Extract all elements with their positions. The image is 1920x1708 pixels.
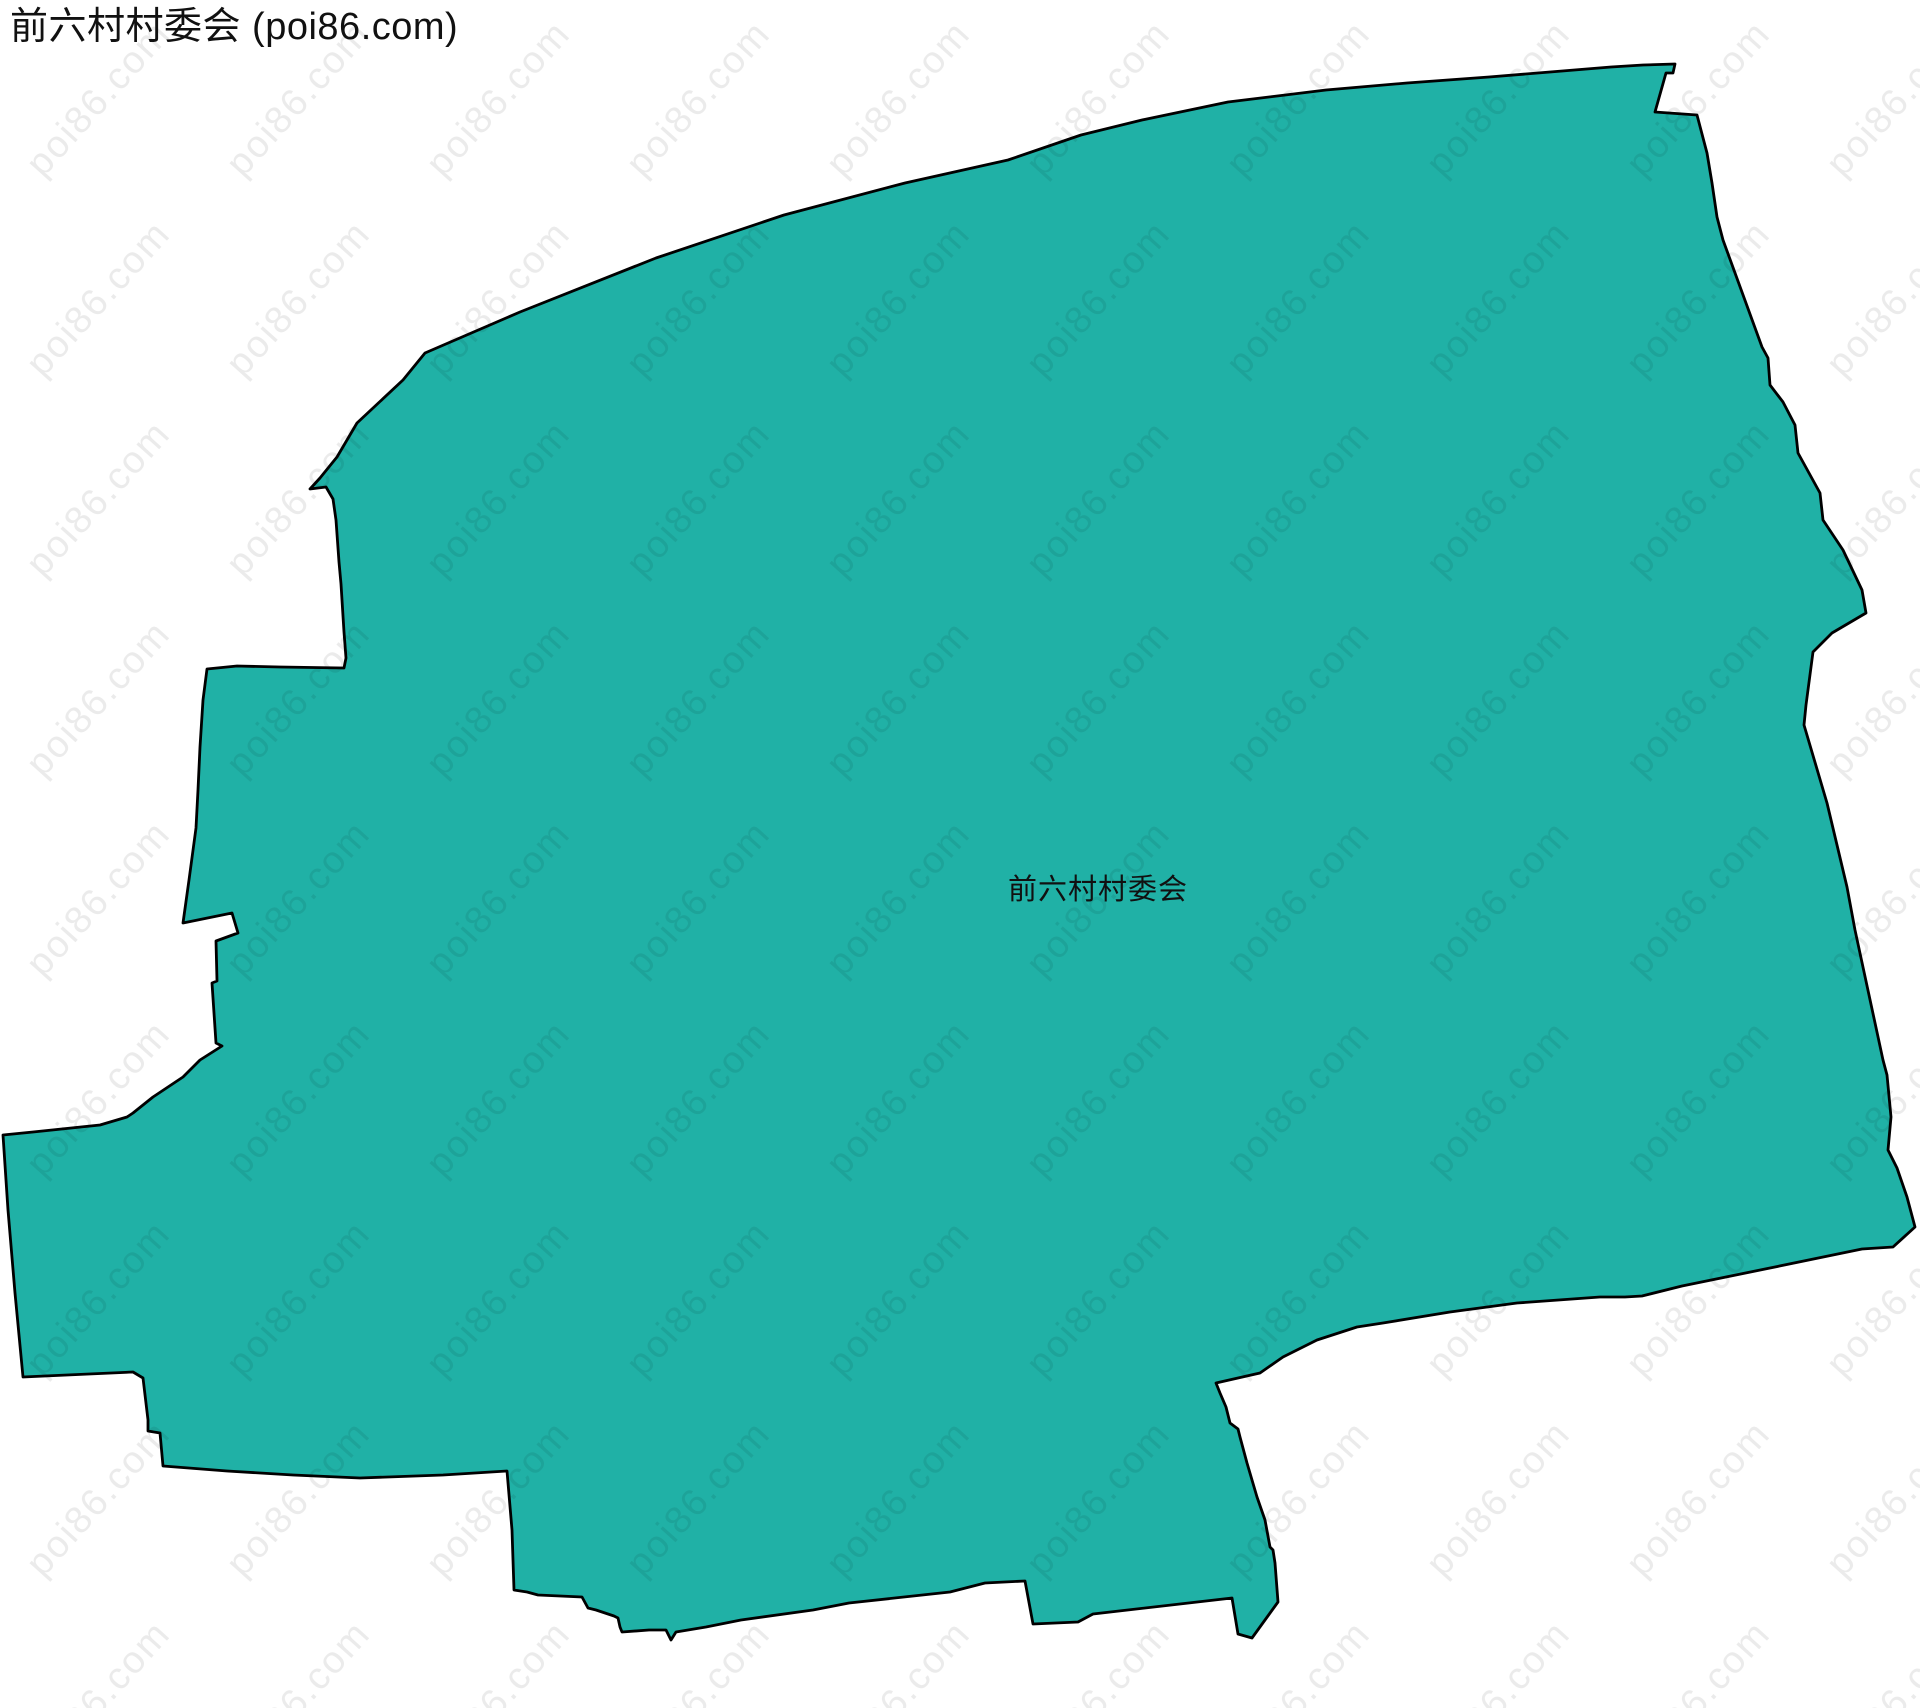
page-title: 前六村村委会 (poi86.com) [10, 6, 458, 50]
boundary-map-svg: poi86.com [0, 0, 1920, 1708]
map-canvas: poi86.com 前六村村委会 (poi86.com) 前六村村委会 [0, 0, 1920, 1708]
region-label: 前六村村委会 [1008, 866, 1188, 908]
watermark-overlay [0, 0, 1920, 1708]
